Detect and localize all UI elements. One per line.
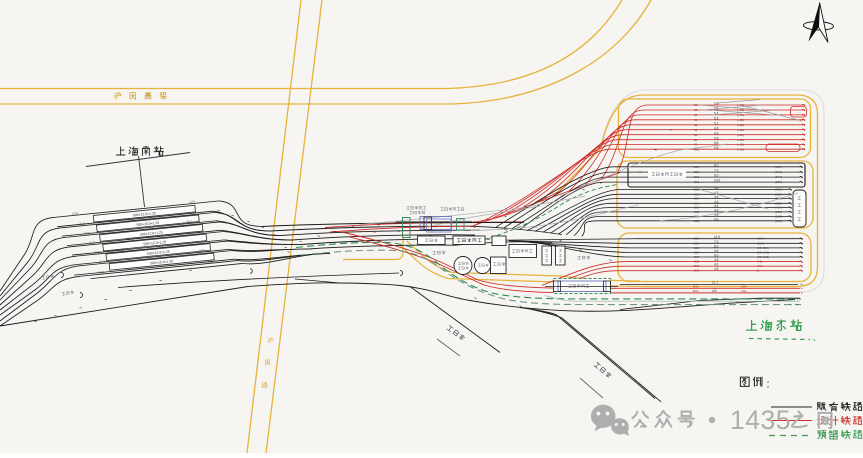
svg-text:(505): (505) (775, 188, 782, 192)
svg-text:8.0: 8.0 (714, 254, 719, 258)
svg-text:30: 30 (694, 108, 698, 112)
svg-text:B26: B26 (694, 250, 700, 254)
svg-text:(904): (904) (757, 237, 764, 241)
svg-text:(83+542): (83+542) (757, 250, 769, 254)
svg-text:8.0: 8.0 (714, 163, 719, 167)
svg-text:B25: B25 (694, 246, 700, 250)
svg-text:B20: B20 (694, 210, 700, 214)
svg-text:4.6: 4.6 (714, 249, 719, 253)
svg-text:4.6: 4.6 (714, 263, 719, 267)
svg-text:13.0: 13.0 (193, 230, 200, 235)
svg-text:B27: B27 (694, 255, 700, 259)
svg-text:3.8: 3.8 (714, 102, 719, 106)
svg-text:(+20): (+20) (737, 123, 744, 127)
svg-text:5.8: 5.8 (714, 136, 719, 140)
svg-text:5.8: 5.8 (714, 146, 719, 150)
svg-text:B10: B10 (694, 170, 700, 174)
svg-text:B31: B31 (693, 289, 699, 293)
svg-text:31: 31 (694, 118, 698, 122)
svg-text:4.6: 4.6 (714, 195, 719, 199)
svg-text:(+08): (+08) (737, 138, 744, 142)
svg-text:B15: B15 (694, 188, 700, 192)
svg-text:(+08): (+08) (737, 128, 744, 132)
svg-text:(90+542): (90+542) (757, 255, 769, 259)
svg-text:B29: B29 (694, 264, 700, 268)
svg-text:(5.6): (5.6) (99, 259, 106, 264)
svg-text:(+36): (+36) (737, 147, 744, 151)
svg-text:B28: B28 (694, 260, 700, 264)
svg-text:20: 20 (694, 103, 698, 107)
svg-text:(559): (559) (757, 241, 764, 245)
svg-text:14.0: 14.0 (207, 259, 214, 264)
svg-text:11.9: 11.9 (714, 235, 720, 239)
svg-text:B30: B30 (694, 269, 700, 273)
svg-text:(3.7): (3.7) (94, 250, 101, 255)
svg-text:(502): (502) (775, 210, 782, 214)
svg-text:B14: B14 (694, 165, 700, 169)
svg-text:4.6: 4.6 (714, 186, 719, 190)
svg-text:36: 36 (694, 133, 698, 137)
svg-text:····: ···· (781, 147, 785, 151)
svg-text:(547): (547) (775, 175, 782, 179)
svg-text:7.0: 7.0 (714, 240, 719, 244)
svg-text:12.0: 12.0 (189, 199, 196, 204)
svg-text:(3.5): (3.5) (72, 211, 79, 216)
svg-text:8.0: 8.0 (714, 244, 719, 248)
svg-text:16.0: 16.0 (198, 248, 205, 253)
svg-text:B22: B22 (694, 219, 700, 223)
svg-text:11.1: 11.1 (712, 280, 718, 284)
svg-text:15.0: 15.0 (186, 219, 193, 224)
svg-text:B30: B30 (693, 284, 699, 288)
svg-text:4.8: 4.8 (714, 126, 719, 130)
svg-text:4.6: 4.6 (712, 289, 717, 293)
svg-text:(+71): (+71) (737, 113, 744, 117)
svg-text:B23: B23 (694, 237, 700, 241)
svg-text:(+20): (+20) (737, 133, 744, 137)
svg-text:(34): (34) (757, 264, 762, 268)
svg-text:(3.6): (3.6) (84, 231, 91, 236)
svg-text:4.6: 4.6 (714, 217, 719, 221)
svg-text:4.6: 4.6 (714, 131, 719, 135)
svg-text:36: 36 (694, 123, 698, 127)
svg-text:(45): (45) (757, 260, 762, 264)
svg-text:30: 30 (694, 113, 698, 117)
svg-text:(5.7): (5.7) (79, 222, 86, 227)
svg-text:4.6: 4.6 (714, 258, 719, 262)
svg-text:(543): (543) (775, 170, 782, 174)
svg-text:10.0: 10.0 (714, 179, 720, 183)
svg-text:B10: B10 (694, 175, 700, 179)
svg-text:5.8: 5.8 (714, 141, 719, 145)
svg-text:8.0: 8.0 (714, 174, 719, 178)
svg-text::: : (767, 379, 770, 391)
svg-text:(31): (31) (741, 289, 746, 293)
svg-text:···: ··· (797, 111, 800, 115)
svg-text:(34): (34) (741, 284, 746, 288)
svg-text:(+36): (+36) (737, 143, 744, 147)
svg-text:7.0: 7.0 (714, 169, 719, 173)
svg-text:(3.5): (3.5) (98, 270, 105, 275)
svg-text:4.5: 4.5 (714, 209, 719, 213)
svg-text:(506): (506) (775, 219, 782, 223)
svg-text:B17: B17 (694, 197, 700, 201)
svg-text:(504): (504) (775, 165, 782, 169)
svg-text:(5.5): (5.5) (89, 241, 96, 246)
svg-text:30: 30 (694, 138, 698, 142)
svg-text:B11: B11 (694, 180, 699, 184)
svg-text:B24: B24 (694, 241, 700, 245)
svg-text:4.6: 4.6 (714, 267, 719, 271)
svg-text:30: 30 (694, 143, 698, 147)
svg-text:(93+924): (93+924) (757, 246, 769, 250)
svg-text:(): () (757, 269, 759, 273)
svg-text:36: 36 (694, 128, 698, 132)
svg-text:5.1: 5.1 (714, 121, 719, 125)
svg-text:1435: 1435 (730, 405, 791, 435)
svg-text:(+08): (+08) (737, 118, 744, 122)
svg-text:(510): (510) (775, 180, 782, 184)
svg-text:5.6: 5.6 (714, 116, 719, 120)
